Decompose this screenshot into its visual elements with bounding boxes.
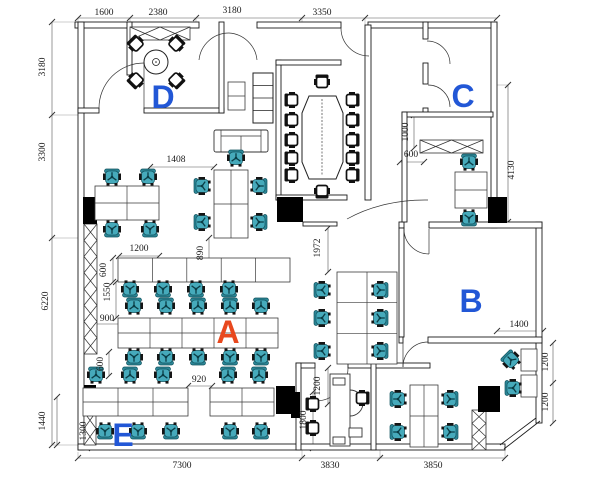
chair-part <box>169 348 172 351</box>
chair-part <box>199 280 202 283</box>
chair-part <box>153 220 156 223</box>
floor-plan-screenshot: DCBAE16002380318033503180330062201440730… <box>0 0 600 480</box>
chair-part <box>137 348 140 351</box>
chair-part <box>512 387 515 390</box>
chair-part <box>258 374 261 377</box>
chair-part <box>108 422 111 425</box>
chair-part <box>220 286 223 293</box>
chair-part <box>95 374 98 377</box>
wall <box>78 108 99 113</box>
chair-part <box>349 181 355 183</box>
chair-part <box>228 288 231 291</box>
chair-part <box>472 209 475 212</box>
chair-part <box>289 132 295 134</box>
chair-part <box>133 356 136 359</box>
chair-part <box>449 398 452 401</box>
conference-chair-icon <box>347 112 360 128</box>
chair-part <box>201 312 204 315</box>
chair-part <box>118 174 121 181</box>
chair-part <box>107 183 110 186</box>
chair-part <box>349 167 355 169</box>
chair-part <box>136 286 139 293</box>
chair-part <box>371 346 374 349</box>
dimension-label: 1300 <box>79 421 89 440</box>
chair-part <box>349 92 355 94</box>
chair-part <box>321 317 324 320</box>
chair-part <box>289 92 295 94</box>
chair-part <box>377 281 384 284</box>
chair-part <box>349 112 355 114</box>
chair-part <box>289 126 295 128</box>
dimension-label: 1200 <box>541 352 551 371</box>
chair-part <box>265 372 268 379</box>
chair-part <box>395 438 402 441</box>
chair-part <box>208 189 211 192</box>
chair-part <box>349 146 355 148</box>
chair-part <box>250 181 253 184</box>
chair-part <box>229 305 232 308</box>
chair-part <box>371 321 374 324</box>
chair-part <box>519 383 522 386</box>
chair-part <box>225 422 228 425</box>
chair-part <box>166 381 169 384</box>
chair-part <box>256 177 263 180</box>
wall <box>423 22 428 39</box>
chair-part <box>314 79 316 85</box>
reception-desk <box>333 378 345 385</box>
chair-part <box>319 324 326 327</box>
chair-part <box>224 280 227 283</box>
chair-part <box>239 164 242 167</box>
chair-part <box>264 422 267 425</box>
chair-part <box>235 286 238 293</box>
conference-chair-icon <box>285 112 298 128</box>
chair-part <box>115 220 118 223</box>
chair-part <box>289 146 295 148</box>
chair-part <box>371 285 374 288</box>
conference-chair-icon <box>347 92 360 108</box>
chair-part <box>377 342 384 345</box>
chair-part <box>310 410 316 412</box>
wall <box>371 363 376 450</box>
chair-part <box>141 422 144 425</box>
chair-part <box>441 427 444 430</box>
chair-part <box>199 177 206 180</box>
chair-part <box>349 132 355 134</box>
chair-part <box>256 312 259 315</box>
conference-chair-icon <box>357 390 370 406</box>
chair-part <box>250 372 253 379</box>
chair-part <box>447 405 454 408</box>
chair-part <box>287 95 298 106</box>
chair-part <box>154 372 157 379</box>
chair-part <box>287 115 298 126</box>
conference-chair-icon <box>314 186 330 199</box>
dimension-label: 900 <box>100 314 115 324</box>
chair-part <box>310 434 316 436</box>
wall <box>257 22 341 28</box>
chair-part <box>165 356 168 359</box>
chair-part <box>347 170 358 181</box>
chair-part <box>258 221 261 224</box>
chair-part <box>166 280 169 283</box>
wall <box>368 22 497 28</box>
chair-part <box>258 185 261 188</box>
dimension-label: 6220 <box>41 291 51 310</box>
chair-part <box>260 430 263 433</box>
structural-column <box>488 197 507 223</box>
chair-part <box>125 280 128 283</box>
chair-part <box>87 372 90 379</box>
chair-part <box>319 281 326 284</box>
chair-part <box>349 164 355 166</box>
chair-part <box>231 164 234 167</box>
room-label-A: A <box>216 314 239 350</box>
chair-part <box>256 422 259 425</box>
chair-part <box>256 228 263 231</box>
chair-part <box>162 288 165 291</box>
chair-part <box>347 115 358 126</box>
chair-part <box>252 354 255 361</box>
chair-part <box>125 381 128 384</box>
chair-part <box>158 280 161 283</box>
chair-part <box>260 305 263 308</box>
chair-part <box>359 404 365 406</box>
chair-part <box>103 226 106 233</box>
chair-part <box>193 348 196 351</box>
chair-part <box>229 356 232 359</box>
chair-part <box>449 431 452 434</box>
chair-part <box>250 225 253 228</box>
chair-part <box>197 356 200 359</box>
wall <box>399 228 404 337</box>
chair-part <box>464 168 467 171</box>
chair-part <box>137 430 140 433</box>
chair-part <box>151 183 154 186</box>
chair-part <box>189 354 192 361</box>
chair-part <box>107 220 110 223</box>
chair-part <box>115 183 118 186</box>
chair-part <box>208 217 211 220</box>
chair-part <box>447 438 454 441</box>
chair-part <box>169 372 172 379</box>
chair-part <box>195 288 198 291</box>
wall <box>78 22 84 450</box>
chair-part <box>139 174 142 181</box>
dimension-label: 600 <box>96 357 106 372</box>
chair-part <box>232 280 235 283</box>
chair-part <box>161 348 164 351</box>
chair-part <box>140 303 143 310</box>
chair-part <box>379 317 382 320</box>
chair-part <box>371 313 374 316</box>
chair-part <box>221 428 224 435</box>
chair-part <box>404 435 407 438</box>
chair-part <box>256 192 263 195</box>
conference-chair-icon <box>347 150 360 166</box>
dimension-label: 1600 <box>95 8 114 18</box>
chair-part <box>221 354 224 361</box>
chair-part <box>187 286 190 293</box>
chair-part <box>221 303 224 310</box>
chair-part <box>475 159 478 166</box>
wall <box>402 112 493 117</box>
round-table-dot <box>155 61 157 63</box>
chair-part <box>140 354 143 361</box>
chair-part <box>447 390 454 393</box>
chair-part <box>317 77 328 88</box>
chair-part <box>202 286 205 293</box>
chair-part <box>133 305 136 308</box>
chair-part <box>267 303 270 310</box>
dimension-label: 3830 <box>321 461 340 471</box>
chair-part <box>347 95 358 106</box>
chair-part <box>141 226 144 233</box>
dimension-label: 600 <box>404 150 419 160</box>
chair-part <box>328 285 331 288</box>
conference-chair-icon <box>285 150 298 166</box>
chair-part <box>377 357 384 360</box>
chair-part <box>287 153 298 164</box>
chair-part <box>250 217 253 220</box>
chair-part <box>349 106 355 108</box>
chair-part <box>395 390 402 393</box>
chair-part <box>144 428 147 435</box>
chair-part <box>359 390 365 392</box>
chair-part <box>199 213 206 216</box>
wall <box>219 22 224 113</box>
chair-part <box>328 188 330 194</box>
chair-part <box>262 381 265 384</box>
chair-part <box>357 393 368 404</box>
chair-part <box>208 225 211 228</box>
room-label-E: E <box>112 417 133 453</box>
hatched-cabinet <box>84 224 97 354</box>
dimension-label: 1200 <box>541 392 551 411</box>
chair-part <box>349 150 355 152</box>
chair-part <box>264 348 267 351</box>
chair-part <box>319 357 326 360</box>
chair-part <box>256 348 259 351</box>
chair-part <box>264 312 267 315</box>
chair-part <box>189 303 192 310</box>
chair-part <box>254 381 257 384</box>
chair-part <box>156 226 159 233</box>
chair-part <box>319 342 326 345</box>
chair-part <box>231 381 234 384</box>
chair-part <box>172 303 175 310</box>
chair-part <box>377 296 384 299</box>
chair-part <box>125 303 128 310</box>
chair-part <box>464 209 467 212</box>
chair-part <box>111 176 114 179</box>
chair-part <box>289 167 295 169</box>
chair-part <box>441 394 444 397</box>
chair-part <box>197 305 200 308</box>
chair-part <box>91 381 94 384</box>
chair-part <box>223 381 226 384</box>
chair-part <box>267 428 270 435</box>
chair-part <box>177 428 180 435</box>
chair-part <box>395 423 402 426</box>
reception-desk <box>333 437 345 444</box>
chair-part <box>143 183 146 186</box>
chair-part <box>227 155 230 162</box>
dimension-label: 3180 <box>223 6 242 16</box>
chair-part <box>308 399 319 410</box>
chair-part <box>174 422 177 425</box>
chair-part <box>308 423 319 434</box>
chair-part <box>287 135 298 146</box>
chair-part <box>149 228 152 231</box>
wall <box>276 60 341 65</box>
chair-part <box>510 379 517 382</box>
chair-part <box>328 354 331 357</box>
dimension-label: 920 <box>192 375 207 385</box>
chair-part <box>158 381 161 384</box>
chair-part <box>447 423 454 426</box>
wall <box>428 337 542 343</box>
conference-chair-icon <box>285 132 298 148</box>
chair-part <box>256 213 263 216</box>
chair-part <box>129 374 132 377</box>
dimension-label: 3850 <box>424 461 443 471</box>
hatched-cabinet <box>420 140 483 153</box>
chair-part <box>319 309 326 312</box>
chair-part <box>317 186 328 197</box>
chair-part <box>267 354 270 361</box>
chair-part <box>347 135 358 146</box>
chair-part <box>349 126 355 128</box>
reception-desk <box>349 428 362 437</box>
chair-part <box>162 428 165 435</box>
chair-part <box>104 430 107 433</box>
chair-part <box>145 220 148 223</box>
chair-part <box>154 286 157 293</box>
dimension-label: 1440 <box>38 411 48 430</box>
dimension-label: 1400 <box>510 320 529 330</box>
chair-part <box>328 79 330 85</box>
chair-part <box>129 288 132 291</box>
chair-part <box>170 430 173 433</box>
chair-part <box>395 405 402 408</box>
wall <box>423 63 428 84</box>
chair-part <box>377 324 384 327</box>
chair-part <box>234 372 237 379</box>
chair-part <box>166 422 169 425</box>
chair-part <box>235 157 238 160</box>
chair-part <box>236 428 239 435</box>
dimension-label: 3300 <box>38 142 48 161</box>
chair-part <box>229 430 232 433</box>
chair-part <box>377 309 384 312</box>
room-label-D: D <box>151 79 174 115</box>
chair-part <box>289 181 295 183</box>
desk <box>521 349 537 371</box>
conference-chair-icon <box>306 396 319 412</box>
chair-part <box>379 350 382 353</box>
chair-part <box>371 293 374 296</box>
chair-part <box>371 354 374 357</box>
chair-part <box>252 303 255 310</box>
chair-part <box>328 346 331 349</box>
chair-part <box>102 372 105 379</box>
chair-part <box>157 303 160 310</box>
wall <box>399 222 404 228</box>
chair-part <box>125 354 128 361</box>
dimension-label: 3180 <box>38 57 48 76</box>
chair-part <box>404 427 407 430</box>
chair-part <box>310 420 316 422</box>
chair-part <box>199 192 206 195</box>
chair-part <box>165 305 168 308</box>
conference-chair-icon <box>285 92 298 108</box>
chair-part <box>154 174 157 181</box>
dimension-label: 7300 <box>173 461 192 471</box>
chair-part <box>321 350 324 353</box>
dimension-label: 1200 <box>313 376 323 395</box>
chair-part <box>321 289 324 292</box>
dimension-label: 1000 <box>401 122 411 141</box>
chair-part <box>208 181 211 184</box>
conference-chair-icon <box>347 167 360 183</box>
chair-part <box>121 286 124 293</box>
conference-chair-icon <box>347 132 360 148</box>
chair-part <box>219 372 222 379</box>
chair-part <box>260 356 263 359</box>
chair-part <box>252 428 255 435</box>
dimension-label: 3350 <box>313 8 332 18</box>
chair-part <box>193 312 196 315</box>
chair-part <box>397 431 400 434</box>
desk <box>521 375 537 397</box>
chair-part <box>133 381 136 384</box>
chair-part <box>227 374 230 377</box>
chair-part <box>441 402 444 405</box>
chair-part <box>319 296 326 299</box>
chair-part <box>233 422 236 425</box>
chair-part <box>96 428 99 435</box>
chair-part <box>169 286 172 293</box>
dimension-label: 1972 <box>313 238 323 257</box>
chair-part <box>242 155 245 162</box>
chair-part <box>460 159 463 166</box>
wall <box>276 60 281 200</box>
wall <box>303 222 337 226</box>
chair-part <box>468 161 471 164</box>
chair-part <box>111 228 114 231</box>
dimension-label: 1550 <box>103 282 113 301</box>
chair-part <box>172 354 175 361</box>
chair-part <box>460 215 463 222</box>
chair-part <box>129 348 132 351</box>
chair-part <box>204 303 207 310</box>
chair-part <box>162 374 165 377</box>
chair-part <box>169 312 172 315</box>
floor-plan-canvas: DCBAE16002380318033503180330062201440730… <box>0 0 600 480</box>
chair-part <box>328 313 331 316</box>
desk <box>118 258 290 282</box>
chair-part <box>191 280 194 283</box>
chair-part <box>289 106 295 108</box>
wall <box>78 444 505 450</box>
chair-part <box>404 402 407 405</box>
chair-part <box>397 398 400 401</box>
chair-part <box>328 321 331 324</box>
chair-part <box>250 189 253 192</box>
dimension-label: 1800 <box>299 410 309 429</box>
chair-part <box>289 164 295 166</box>
